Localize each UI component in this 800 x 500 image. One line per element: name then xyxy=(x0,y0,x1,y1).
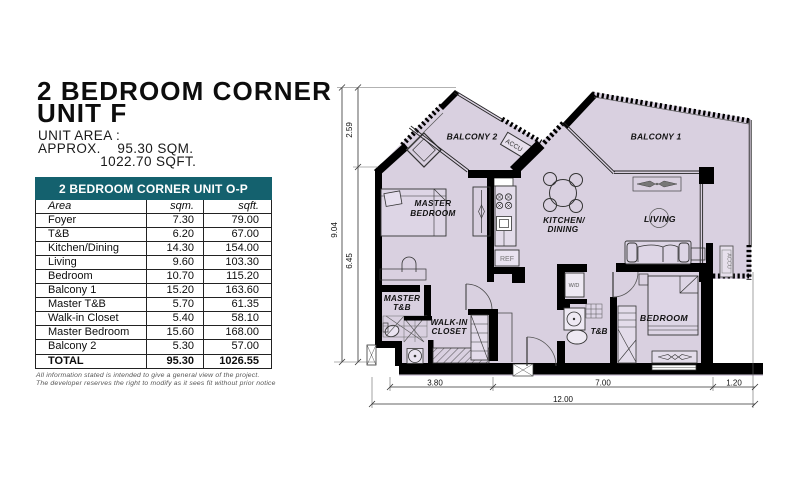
svg-text:7.00: 7.00 xyxy=(595,379,611,388)
svg-text:3.80: 3.80 xyxy=(427,379,443,388)
svg-text:MASTER: MASTER xyxy=(384,294,420,303)
svg-text:BALCONY 2: BALCONY 2 xyxy=(447,132,498,142)
svg-text:2.59: 2.59 xyxy=(345,122,354,138)
svg-text:WALK-IN: WALK-IN xyxy=(430,318,468,327)
svg-text:MASTER: MASTER xyxy=(415,199,452,208)
svg-text:LIVING: LIVING xyxy=(644,214,676,224)
svg-text:BEDROOM: BEDROOM xyxy=(410,209,456,218)
svg-text:T&B: T&B xyxy=(591,327,608,336)
svg-text:12.00: 12.00 xyxy=(553,395,574,404)
svg-text:BEDROOM: BEDROOM xyxy=(640,313,689,323)
svg-text:DINING: DINING xyxy=(547,225,578,234)
svg-text:REF: REF xyxy=(500,256,514,263)
svg-text:6.45: 6.45 xyxy=(345,253,354,269)
svg-text:9.04: 9.04 xyxy=(330,222,339,238)
svg-text:1.20: 1.20 xyxy=(726,379,742,388)
svg-text:CLOSET: CLOSET xyxy=(431,327,467,336)
svg-text:W/D: W/D xyxy=(569,283,580,289)
svg-text:T&B: T&B xyxy=(393,303,411,312)
svg-text:ACCU: ACCU xyxy=(726,253,732,269)
svg-text:BALCONY 1: BALCONY 1 xyxy=(631,132,682,142)
svg-text:KITCHEN/: KITCHEN/ xyxy=(543,216,585,225)
